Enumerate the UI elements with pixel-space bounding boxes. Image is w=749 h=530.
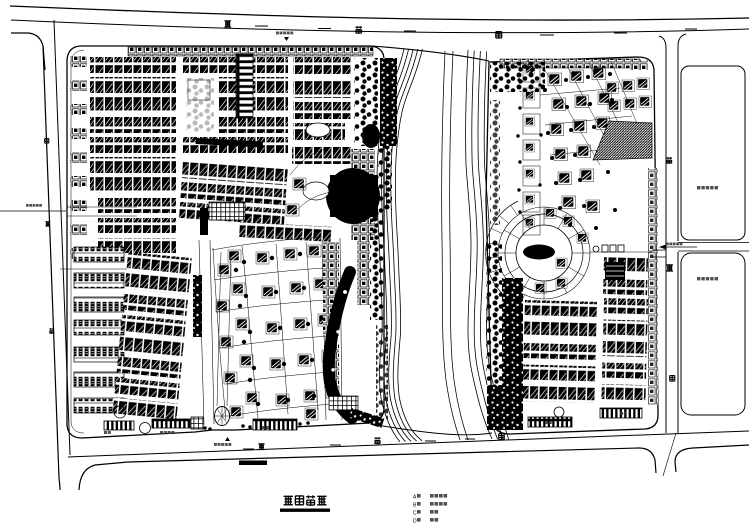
svg-text:D: D xyxy=(413,519,417,525)
svg-text:C: C xyxy=(413,511,417,517)
